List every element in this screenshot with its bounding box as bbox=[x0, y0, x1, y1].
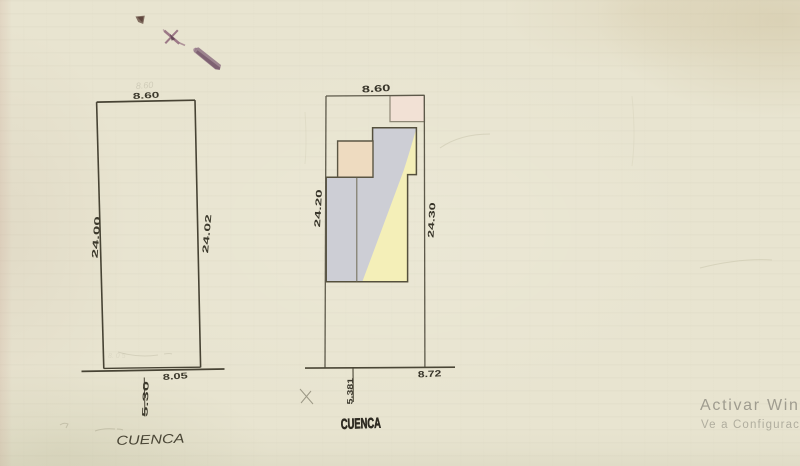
svg-text:24.30: 24.30 bbox=[426, 202, 438, 238]
svg-text:8.72: 8.72 bbox=[418, 368, 442, 379]
svg-text:5.30: 5.30 bbox=[141, 380, 151, 418]
svg-text:8.60: 8.60 bbox=[362, 83, 391, 95]
svg-text:CUENCA: CUENCA bbox=[116, 431, 184, 448]
svg-text:8. 0 5: 8. 0 5 bbox=[108, 353, 126, 360]
svg-text:8.05: 8.05 bbox=[162, 370, 188, 382]
svg-text:8.60: 8.60 bbox=[133, 90, 160, 101]
svg-text:5.381: 5.381 bbox=[346, 377, 355, 404]
svg-text:24.02: 24.02 bbox=[200, 213, 213, 253]
svg-text:24.20: 24.20 bbox=[312, 189, 324, 228]
svg-text:CUENCA: CUENCA bbox=[341, 416, 382, 433]
